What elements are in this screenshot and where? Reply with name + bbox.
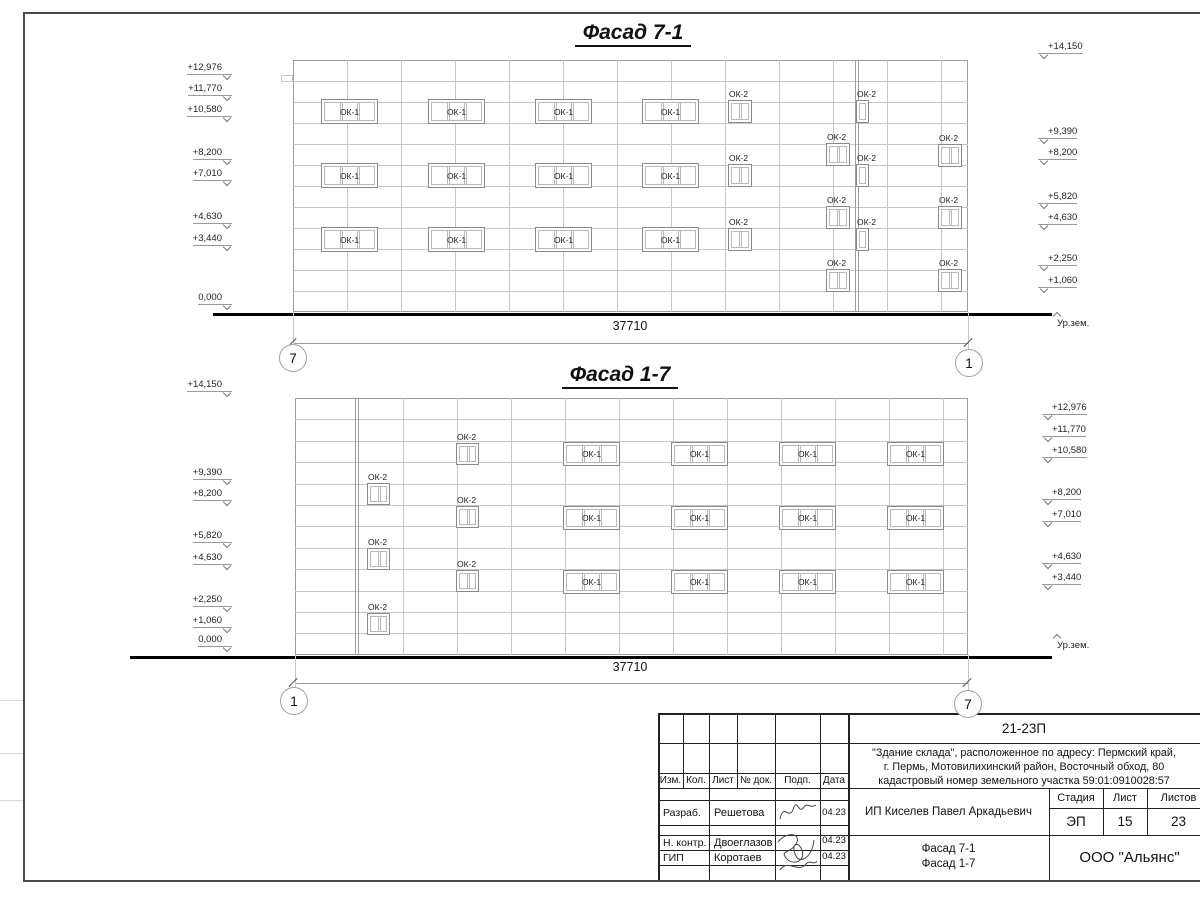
organization-name: ООО "Альянс": [1049, 835, 1200, 880]
window-mullion: [837, 147, 838, 162]
window-label: ОК-2: [939, 195, 958, 205]
window-label: ОК-1: [888, 449, 943, 459]
window-ОК-2: [728, 164, 752, 187]
wall-joint: [355, 398, 356, 655]
window-label: ОК-1: [780, 513, 835, 523]
elevation-value: +3,440: [193, 233, 222, 246]
elevation-mark: +10,580: [140, 103, 232, 117]
ground-line: [130, 656, 1052, 659]
window-mullion: [469, 574, 470, 588]
panel-joint: [295, 612, 968, 613]
dimension-line: [293, 343, 968, 344]
window-label: ОК-1: [888, 577, 943, 587]
elevation-mark: +12,976: [1042, 401, 1134, 415]
window-mullion: [467, 447, 468, 461]
window-label: ОК-1: [643, 107, 698, 117]
listov-header: Листов: [1147, 788, 1200, 808]
window-ОК-2: [456, 506, 479, 528]
elevation-mark: 0,000: [140, 291, 232, 305]
window-ОК-1: ОК-1: [563, 442, 620, 466]
window-label: ОК-2: [457, 432, 476, 442]
elevation-value: +5,820: [1048, 191, 1077, 204]
window-ОК-1: ОК-1: [321, 227, 378, 252]
window-frame: [370, 551, 387, 567]
window-label: ОК-2: [368, 537, 387, 547]
window-mullion: [739, 168, 740, 183]
window-ОК-2: [938, 144, 962, 167]
window-label: ОК-2: [729, 153, 748, 163]
window-frame: [459, 509, 476, 525]
window-label: ОК-1: [536, 235, 591, 245]
ground-line: [213, 313, 1052, 316]
document-code: 21-23П: [848, 714, 1200, 743]
col-header-podp: Подп.: [775, 773, 820, 788]
window-label: ОК-2: [857, 217, 876, 227]
window-ОК-2: [456, 443, 479, 465]
row-date-razrab: 04.23: [820, 800, 848, 825]
elevation-value: +12,976: [187, 62, 222, 75]
elevation-value: +8,200: [193, 147, 222, 160]
window-mullion: [949, 273, 950, 288]
col-header-list: Лист: [709, 773, 737, 788]
elevation-mark: +5,820: [140, 529, 232, 543]
window-ОК-2: [826, 206, 850, 229]
window-ОК-1: ОК-1: [779, 570, 836, 594]
row-name-razrab: Решетова: [711, 800, 773, 825]
window-label: ОК-1: [429, 107, 484, 117]
window-label: ОК-1: [780, 577, 835, 587]
elevation-value: 0,000: [198, 292, 222, 305]
window-ОК-1: ОК-1: [563, 570, 620, 594]
panel-joint: [403, 398, 404, 655]
window-ОК-1: ОК-1: [779, 442, 836, 466]
elevation-mark: +3,440: [140, 232, 232, 246]
stage-header: Стадия: [1049, 788, 1103, 808]
object-address-line: кадастровый номер земельного участка 59:…: [848, 774, 1200, 788]
signature: [777, 797, 819, 827]
window-label: ОК-2: [857, 153, 876, 163]
window-ОК-2: [826, 143, 850, 166]
elevation-value: +1,060: [193, 615, 222, 628]
elevation-value: +2,250: [1048, 253, 1077, 266]
window-label: ОК-2: [368, 602, 387, 612]
window-ОК-1: ОК-1: [671, 570, 728, 594]
elevation-mark: +8,200: [140, 487, 232, 501]
window-label: ОК-1: [429, 171, 484, 181]
window-ОК-2: [826, 269, 850, 292]
window-ОК-1: ОК-1: [535, 99, 592, 124]
window-ОК-2: [856, 100, 869, 123]
window-label: ОК-1: [564, 513, 619, 523]
elevation-mark: +2,250: [140, 593, 232, 607]
elevation-value: 0,000: [198, 634, 222, 647]
elevation-value: +3,440: [1052, 572, 1081, 585]
row-date-gip: 04.23: [820, 849, 848, 864]
elevation-value: +11,770: [188, 83, 222, 96]
window-frame: [829, 272, 847, 289]
row-date-nkontr: 04.23: [820, 833, 848, 848]
window-mullion: [839, 273, 840, 288]
row-role-gip: ГИП: [660, 850, 708, 865]
client-name: ИП Киселев Павел Аркадьевич: [848, 788, 1049, 835]
parapet-ledge: [281, 75, 293, 82]
window-ОК-1: ОК-1: [642, 163, 699, 188]
elevation-mark: +4,630: [1042, 550, 1134, 564]
panel-joint: [887, 60, 888, 312]
window-mullion: [837, 210, 838, 225]
elevation-value: +8,200: [193, 488, 222, 501]
margin-line: [0, 800, 23, 801]
window-label: ОК-1: [672, 449, 727, 459]
elevation-mark: +7,010: [1042, 508, 1134, 522]
wall-joint: [358, 398, 359, 655]
window-label: ОК-1: [643, 171, 698, 181]
window-label: ОК-2: [368, 472, 387, 482]
elevation-mark: +8,200: [1042, 486, 1134, 500]
titleblock-line: [709, 713, 710, 880]
elevation-mark: +12,976: [140, 61, 232, 75]
window-mullion: [951, 273, 952, 288]
panel-joint: [401, 60, 402, 312]
window-mullion: [741, 104, 742, 119]
window-label: ОК-2: [827, 195, 846, 205]
window-label: ОК-2: [857, 89, 876, 99]
panel-joint: [295, 569, 968, 570]
elevation-mark: +9,390: [1038, 125, 1130, 139]
panel-joint: [617, 60, 618, 312]
row-name-nkontr: Двоеглазов: [711, 835, 773, 850]
window-frame: [859, 231, 866, 248]
window-frame: [829, 146, 847, 163]
elevation-mark: +14,150: [140, 378, 232, 392]
elevation-value: +7,010: [193, 168, 222, 181]
window-label: ОК-1: [672, 577, 727, 587]
window-ОК-1: ОК-1: [887, 506, 944, 530]
row-name-gip: Коротаев: [711, 850, 773, 865]
window-frame: [941, 272, 959, 289]
panel-joint: [295, 526, 968, 527]
object-address-line: г. Пермь, Мотовилихинский район, Восточн…: [848, 760, 1200, 774]
axis-leader: [968, 312, 969, 349]
window-ОК-2: [728, 100, 752, 123]
window-frame: [859, 167, 866, 184]
window-mullion: [739, 104, 740, 119]
window-frame: [370, 616, 387, 632]
panel-joint: [293, 270, 968, 271]
panel-joint: [295, 441, 968, 442]
window-ОК-1: ОК-1: [428, 227, 485, 252]
panel-joint: [293, 207, 968, 208]
elevation-mark: +11,770: [140, 82, 232, 96]
window-mullion: [741, 168, 742, 183]
panel-joint: [779, 60, 780, 312]
window-mullion: [378, 552, 379, 566]
panel-joint: [295, 633, 968, 634]
elevation-value: +10,580: [187, 104, 222, 117]
window-mullion: [741, 232, 742, 247]
window-ОК-2: [456, 570, 479, 592]
elevation-mark: +4,630: [140, 210, 232, 224]
window-ОК-1: ОК-1: [887, 442, 944, 466]
elevation-value: +8,200: [1048, 147, 1077, 160]
elevation-value: +4,630: [1052, 551, 1081, 564]
window-label: ОК-1: [888, 513, 943, 523]
window-label: ОК-2: [827, 132, 846, 142]
sheet-frame-line: [23, 12, 1200, 14]
panel-joint: [725, 60, 726, 312]
elevation-value: +11,770: [1052, 424, 1086, 437]
window-ОК-1: ОК-1: [535, 227, 592, 252]
panel-joint: [511, 398, 512, 655]
window-mullion: [378, 617, 379, 631]
window-ОК-1: ОК-1: [321, 163, 378, 188]
window-label: ОК-1: [564, 449, 619, 459]
window-label: ОК-1: [322, 171, 377, 181]
elevation-value: +7,010: [1052, 509, 1081, 522]
window-mullion: [949, 210, 950, 225]
elevation-value: +4,630: [193, 552, 222, 565]
elevation-mark: +7,010: [140, 167, 232, 181]
window-ОК-1: ОК-1: [321, 99, 378, 124]
window-mullion: [949, 148, 950, 163]
window-label: ОК-1: [322, 107, 377, 117]
window-ОК-2: [856, 164, 869, 187]
panel-joint: [295, 484, 968, 485]
window-ОК-1: ОК-1: [428, 99, 485, 124]
sheet-frame-line: [23, 880, 1200, 882]
elevation-mark: +5,820: [1038, 190, 1130, 204]
object-address-line: "Здание склада", расположенное по адресу…: [848, 746, 1200, 760]
elevation-value: +14,150: [187, 379, 222, 392]
window-label: ОК-2: [729, 217, 748, 227]
list-header: Лист: [1103, 788, 1147, 808]
dimension-line: [295, 683, 968, 684]
window-label: ОК-1: [429, 235, 484, 245]
col-header-ndok: № док.: [737, 773, 775, 788]
window-frame: [731, 231, 749, 248]
window-ОК-1: ОК-1: [642, 99, 699, 124]
window-mullion: [951, 148, 952, 163]
window-ОК-2: [367, 483, 390, 505]
elevation-mark: +2,250: [1038, 252, 1130, 266]
window-frame: [459, 573, 476, 589]
elevation-value: +2,250: [193, 594, 222, 607]
panel-joint: [293, 144, 968, 145]
window-label: ОК-2: [457, 495, 476, 505]
elevation-value: +10,580: [1052, 445, 1087, 458]
window-ОК-2: [728, 228, 752, 251]
window-label: ОК-1: [536, 107, 591, 117]
elevation-mark: +1,060: [140, 614, 232, 628]
window-mullion: [951, 210, 952, 225]
panel-joint: [293, 123, 968, 124]
window-ОК-1: ОК-1: [779, 506, 836, 530]
panel-joint: [295, 505, 968, 506]
panel-joint: [295, 591, 968, 592]
panel-joint: [295, 548, 968, 549]
window-ОК-2: [938, 206, 962, 229]
sheet-title-line: Фасад 1-7: [848, 856, 1049, 872]
window-mullion: [469, 510, 470, 524]
window-ОК-2: [938, 269, 962, 292]
window-frame: [941, 209, 959, 226]
window-frame: [459, 446, 476, 462]
col-header-kol: Кол.: [683, 773, 709, 788]
window-mullion: [467, 510, 468, 524]
window-mullion: [839, 147, 840, 162]
window-label: ОК-1: [672, 513, 727, 523]
window-label: ОК-1: [780, 449, 835, 459]
drawing-sheet: { "facades": [ { "title": "Фасад 7-1", "…: [0, 0, 1200, 900]
window-mullion: [380, 617, 381, 631]
window-mullion: [380, 487, 381, 501]
elevation-value: +9,390: [193, 467, 222, 480]
col-header-izm: Изм.: [658, 773, 683, 788]
window-label: ОК-1: [643, 235, 698, 245]
elevation-mark: 0,000: [140, 633, 232, 647]
elevation-value: +1,060: [1048, 275, 1077, 288]
window-ОК-1: ОК-1: [535, 163, 592, 188]
window-mullion: [467, 574, 468, 588]
signature: [772, 828, 820, 878]
elevation-value: +4,630: [193, 211, 222, 224]
elevation-value: +5,820: [193, 530, 222, 543]
window-frame: [829, 209, 847, 226]
list-value: 15: [1103, 808, 1147, 835]
elevation-mark: +3,440: [1042, 571, 1134, 585]
axis-leader: [295, 655, 296, 687]
row-role-razrab: Разраб.: [660, 800, 708, 825]
panel-joint: [293, 81, 968, 82]
sheet-title-line: Фасад 7-1: [848, 841, 1049, 857]
panel-joint: [295, 462, 968, 463]
window-ОК-2: [856, 228, 869, 251]
window-label: ОК-2: [457, 559, 476, 569]
window-mullion: [378, 487, 379, 501]
window-ОК-2: [367, 613, 390, 635]
elevation-value: +14,150: [1048, 41, 1083, 54]
panel-joint: [293, 291, 968, 292]
titleblock-line: [658, 825, 848, 826]
window-label: ОК-2: [939, 133, 958, 143]
elevation-mark: +11,770: [1042, 423, 1134, 437]
elevation-mark: +14,150: [1038, 40, 1130, 54]
elevation-value: +8,200: [1052, 487, 1081, 500]
window-label: ОК-1: [322, 235, 377, 245]
elevation-value: +4,630: [1048, 212, 1077, 225]
elevation-mark: +10,580: [1042, 444, 1134, 458]
window-label: ОК-2: [729, 89, 748, 99]
elevation-mark: +9,390: [140, 466, 232, 480]
margin-line: [0, 700, 23, 701]
window-label: ОК-1: [564, 577, 619, 587]
window-frame: [859, 103, 866, 120]
stage-value: ЭП: [1049, 808, 1103, 835]
row-role-nkontr: Н. контр.: [660, 835, 708, 850]
window-label: ОК-2: [939, 258, 958, 268]
axis-leader: [968, 655, 969, 690]
panel-joint: [509, 60, 510, 312]
window-label: ОК-2: [827, 258, 846, 268]
sheet-frame-line: [23, 12, 25, 881]
window-frame: [731, 167, 749, 184]
elevation-mark: +8,200: [1038, 146, 1130, 160]
listov-value: 23: [1147, 808, 1200, 835]
window-ОК-2: [367, 548, 390, 570]
margin-line: [0, 753, 23, 754]
window-ОК-1: ОК-1: [671, 506, 728, 530]
window-ОК-1: ОК-1: [887, 570, 944, 594]
col-header-data: Дата: [820, 773, 848, 788]
window-mullion: [739, 232, 740, 247]
window-mullion: [837, 273, 838, 288]
window-frame: [731, 103, 749, 120]
elevation-mark: +4,630: [140, 551, 232, 565]
window-ОК-1: ОК-1: [563, 506, 620, 530]
elevation-mark: +8,200: [140, 146, 232, 160]
window-ОК-1: ОК-1: [642, 227, 699, 252]
window-mullion: [469, 447, 470, 461]
window-ОК-1: ОК-1: [428, 163, 485, 188]
elevation-value: +9,390: [1048, 126, 1077, 139]
window-frame: [370, 486, 387, 502]
window-ОК-1: ОК-1: [671, 442, 728, 466]
titleblock-line: [658, 743, 1200, 744]
window-frame: [941, 147, 959, 164]
panel-joint: [295, 419, 968, 420]
elevation-mark: +4,630: [1038, 211, 1130, 225]
elevation-value: +12,976: [1052, 402, 1087, 415]
window-mullion: [839, 210, 840, 225]
window-mullion: [380, 552, 381, 566]
elevation-mark: +1,060: [1038, 274, 1130, 288]
window-label: ОК-1: [536, 171, 591, 181]
